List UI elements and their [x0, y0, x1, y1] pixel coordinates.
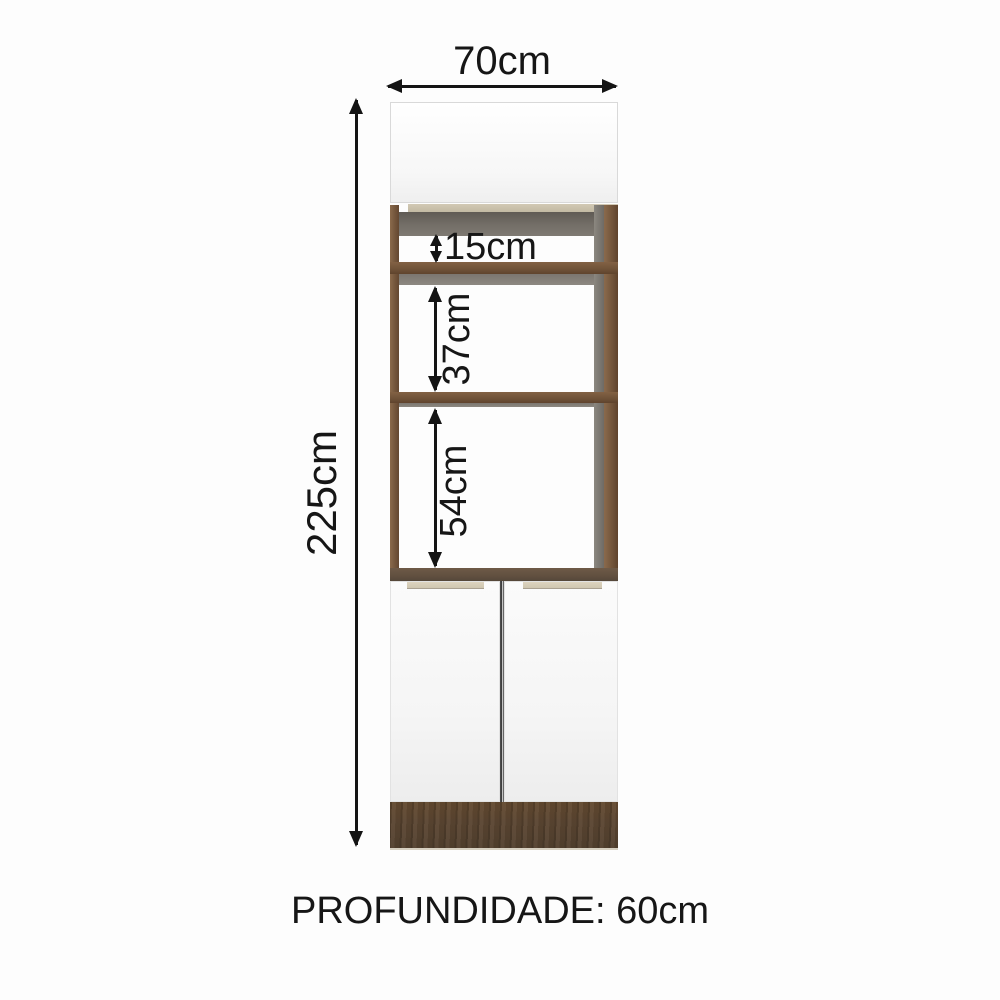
shelf-middle-front-edge [390, 392, 618, 403]
gap-middle-dimension-label: 37cm [436, 284, 478, 394]
height-dimension-arrow [355, 100, 358, 845]
top-door-panel [390, 102, 618, 203]
base-plinth [390, 802, 618, 850]
depth-dimension-label: PROFUNDIDADE: 60cm [250, 892, 750, 932]
gap-bottom-dimension-label: 54cm [433, 433, 475, 549]
width-dimension-arrow [388, 85, 616, 88]
door-handle-left [407, 582, 484, 589]
gap-top-dimension-arrow [435, 236, 438, 261]
width-dimension-label: 70cm [388, 40, 616, 82]
shelf-upper-underside [399, 274, 594, 285]
gap-top-dimension-label: 15cm [444, 228, 537, 268]
door-handle-right [523, 582, 602, 589]
shelf-lower-front-edge [390, 568, 618, 581]
bottom-door-right [504, 581, 618, 802]
shelf-middle-underside [399, 403, 594, 407]
bottom-door-left [390, 581, 500, 802]
furniture-dimension-diagram: 70cm 225cm 15cm 37cm 54cm PROFUNDIDADE: … [0, 0, 1000, 1000]
carcass-top-edge [408, 204, 618, 212]
tall-cabinet [390, 102, 618, 848]
height-dimension-label: 225cm [300, 408, 344, 578]
